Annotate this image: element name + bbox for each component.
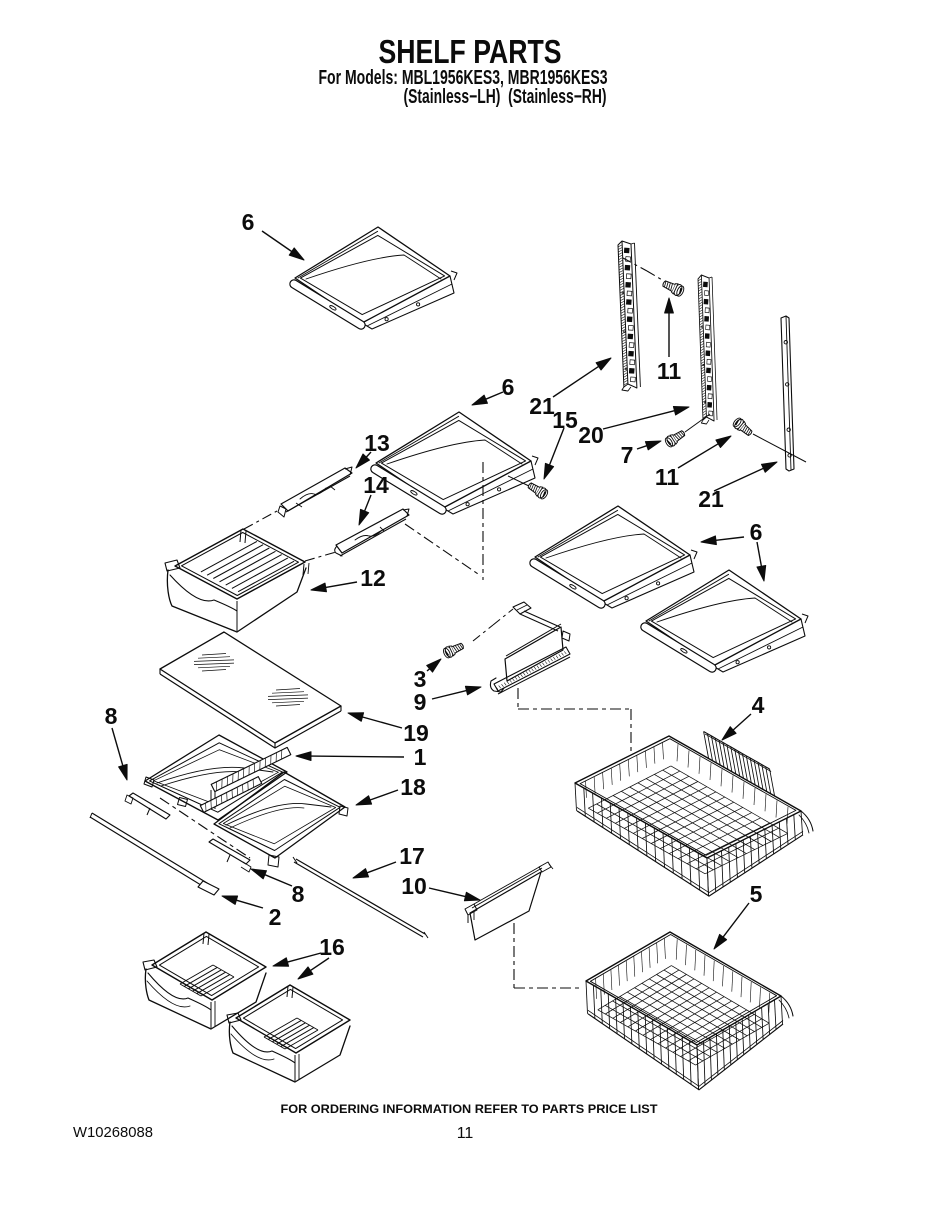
svg-text:6: 6 <box>750 519 763 545</box>
svg-text:7: 7 <box>621 442 634 468</box>
svg-text:13: 13 <box>364 430 390 456</box>
svg-text:(Stainless−LH) (Stainless−RH): (Stainless−LH) (Stainless−RH) <box>404 86 607 108</box>
svg-text:18: 18 <box>400 774 426 800</box>
svg-text:9: 9 <box>414 689 427 715</box>
svg-text:6: 6 <box>242 209 255 235</box>
svg-text:5: 5 <box>750 881 763 907</box>
svg-text:10: 10 <box>401 873 427 899</box>
svg-text:16: 16 <box>319 934 345 960</box>
svg-text:11: 11 <box>457 1125 474 1142</box>
svg-text:11: 11 <box>657 358 682 384</box>
svg-text:SHELF PARTS: SHELF PARTS <box>379 33 562 70</box>
svg-text:6: 6 <box>502 374 515 400</box>
svg-text:17: 17 <box>399 843 425 869</box>
svg-text:8: 8 <box>105 703 118 729</box>
svg-text:12: 12 <box>360 565 386 591</box>
svg-text:21: 21 <box>529 393 555 419</box>
svg-text:14: 14 <box>363 472 389 498</box>
svg-text:21: 21 <box>698 486 724 512</box>
svg-text:W10268088: W10268088 <box>73 1124 153 1141</box>
svg-text:1: 1 <box>414 744 427 770</box>
svg-text:2: 2 <box>269 904 282 930</box>
svg-text:20: 20 <box>578 422 604 448</box>
svg-text:15: 15 <box>552 407 578 433</box>
svg-text:8: 8 <box>292 881 305 907</box>
svg-text:19: 19 <box>403 720 429 746</box>
svg-text:FOR ORDERING INFORMATION REFER: FOR ORDERING INFORMATION REFER TO PARTS … <box>281 1104 658 1116</box>
svg-text:4: 4 <box>752 692 765 718</box>
svg-text:11: 11 <box>655 464 680 490</box>
